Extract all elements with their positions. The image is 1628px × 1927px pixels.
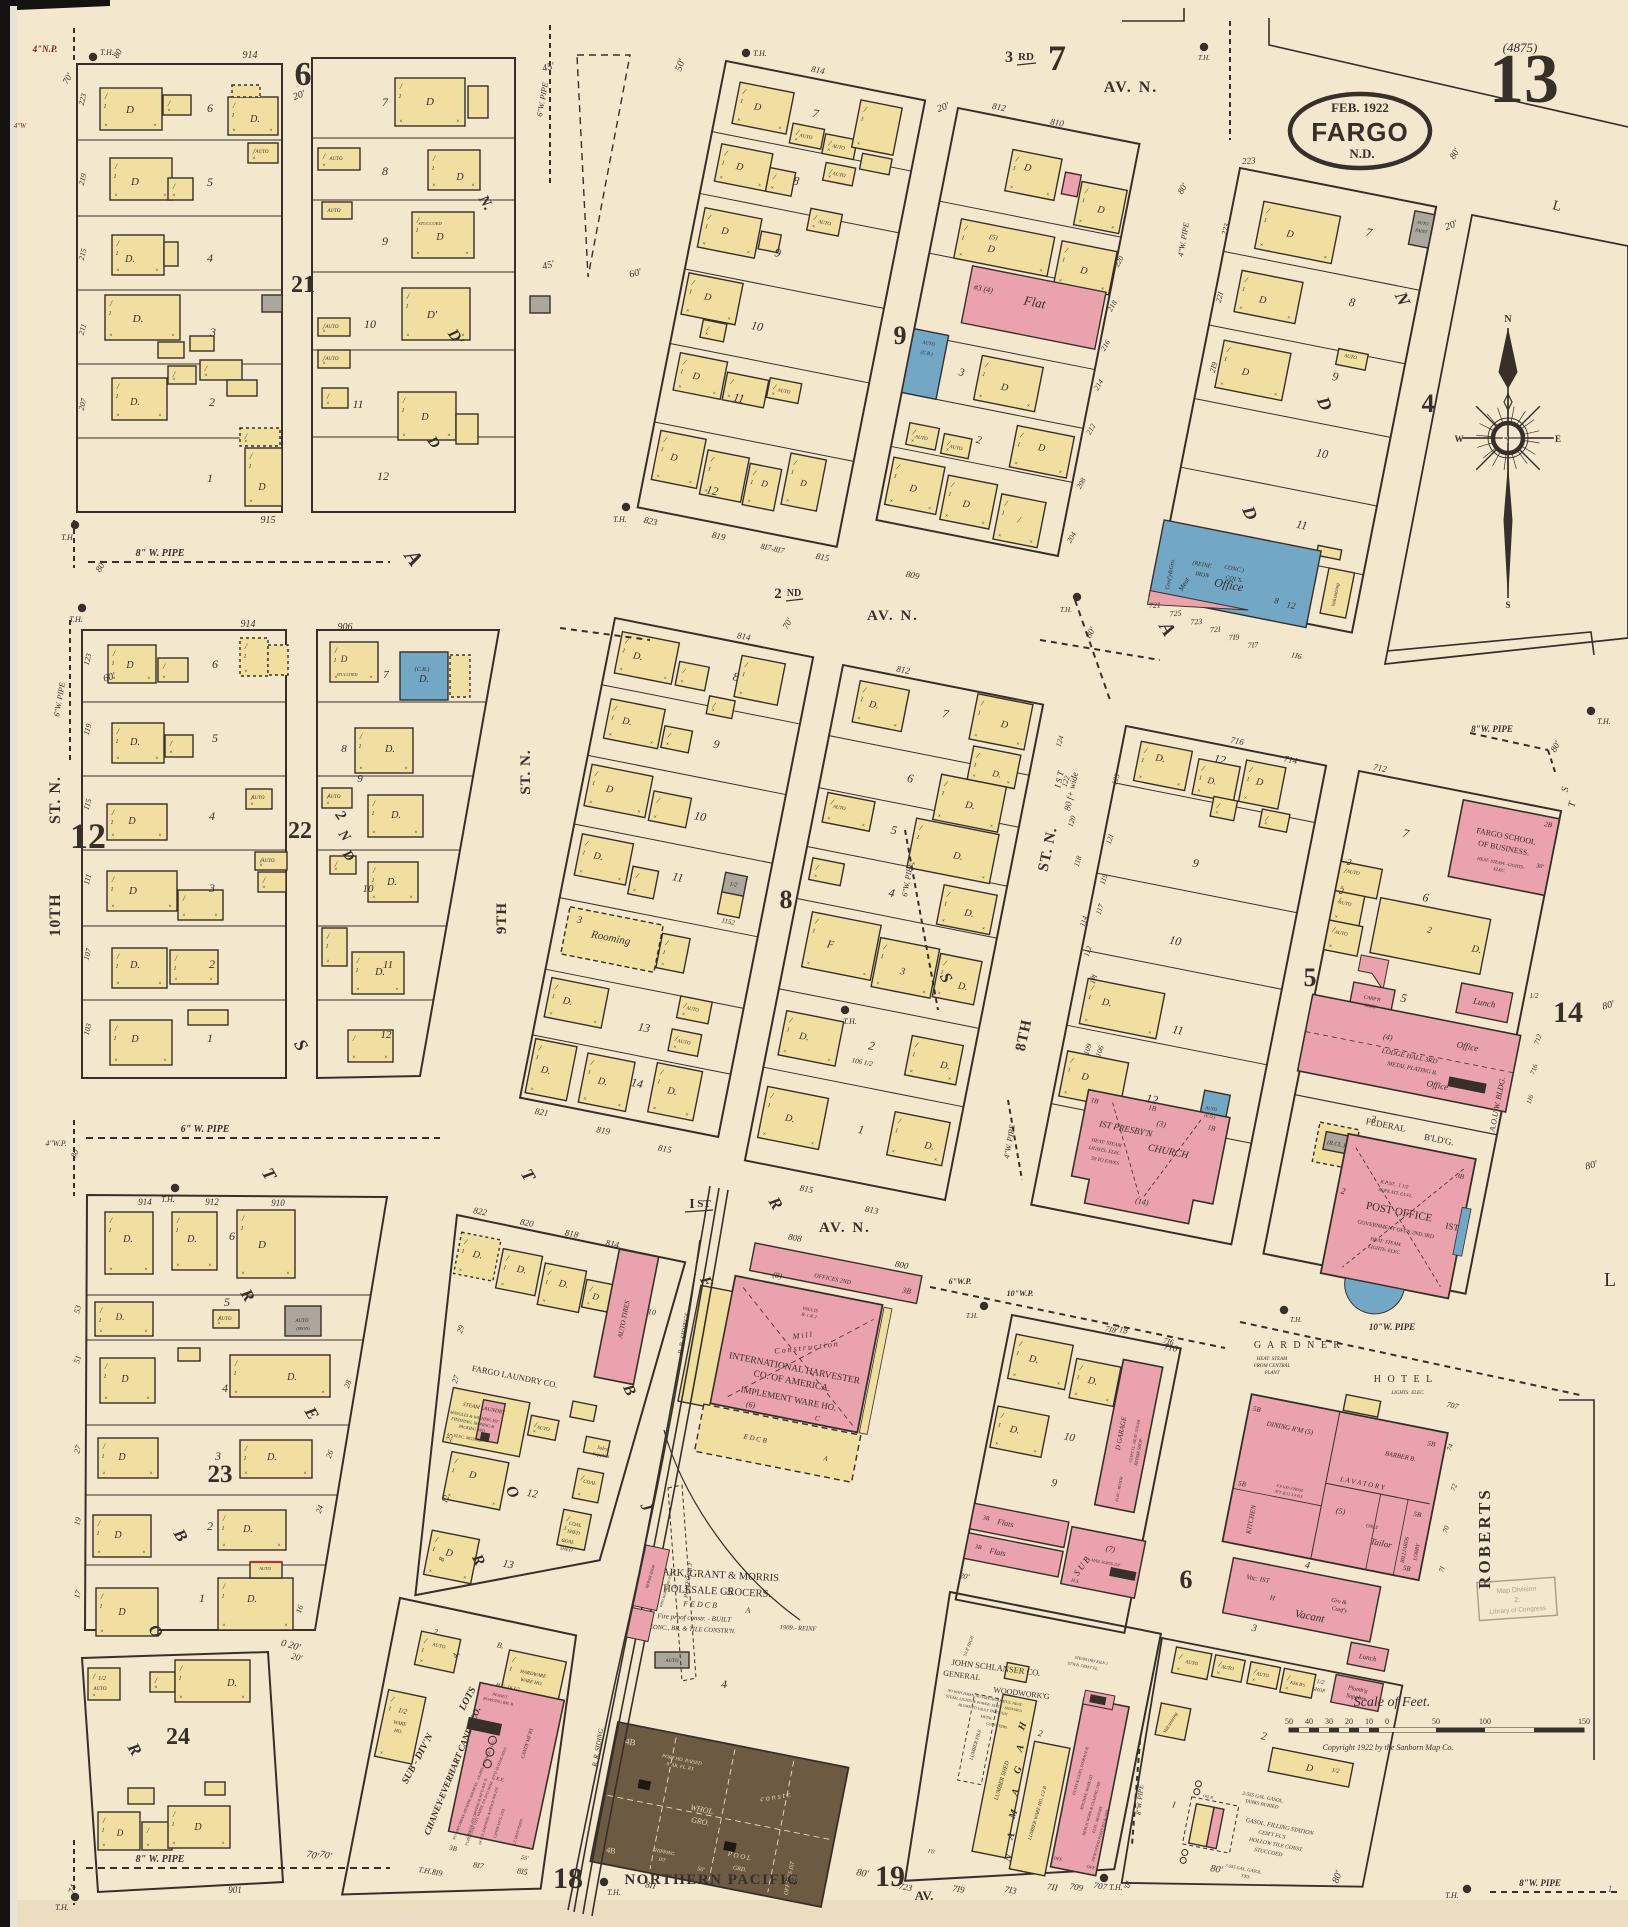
svg-text:AUTO: AUTO [258,1566,271,1571]
svg-text:AUTO: AUTO [218,1317,232,1322]
svg-text:×: × [395,987,398,993]
svg-text:10TH: 10TH [47,893,64,936]
svg-text:1: 1 [244,654,247,660]
svg-text:×: × [116,756,119,762]
svg-text:D: D [257,1239,266,1251]
svg-text:×: × [171,333,174,339]
svg-text:1: 1 [207,1031,213,1045]
svg-text:1: 1 [222,1594,225,1600]
svg-text:×: × [277,1543,280,1549]
svg-text:N.D.: N.D. [1349,146,1374,161]
svg-text:6" W. PIPE: 6" W. PIPE [181,1124,230,1135]
svg-text:725: 725 [1169,609,1182,619]
svg-text:×: × [172,377,175,383]
svg-text:D.: D. [797,1030,810,1043]
svg-text:D.: D. [129,960,140,971]
svg-text:1/2: 1/2 [1530,992,1539,1000]
svg-text:D.: D. [286,1372,297,1383]
svg-text:1: 1 [116,394,119,400]
svg-text:4"W: 4"W [14,122,27,130]
svg-text:×: × [109,1267,112,1273]
svg-text:7I7: 7I7 [1247,640,1259,650]
svg-text:707: 707 [1093,1880,1108,1892]
svg-text:1: 1 [244,1456,247,1462]
svg-text:E: E [1555,434,1561,444]
svg-text:×: × [168,904,171,910]
svg-text:PLANT: PLANT [1263,1371,1280,1376]
svg-text:723: 723 [1190,617,1203,627]
svg-text:AUTO: AUTO [325,325,339,330]
svg-text:2: 2 [774,586,782,602]
svg-text:×: × [244,439,247,445]
svg-text:223: 223 [1242,155,1257,166]
svg-text:6: 6 [212,657,218,671]
svg-text:D': D' [426,309,438,321]
svg-text:D.: D. [922,1140,935,1153]
svg-text:D.: D. [242,1524,253,1535]
svg-text:D: D [128,885,137,897]
svg-text:×: × [326,801,329,807]
svg-text:14: 14 [1553,996,1583,1029]
svg-text:22: 22 [288,818,312,844]
svg-text:2: 2 [207,1519,213,1533]
svg-text:T.H.: T.H. [1198,54,1210,62]
svg-text:4: 4 [207,251,213,265]
svg-text:1: 1 [112,661,115,667]
svg-text:9: 9 [357,773,363,785]
svg-text:T.H.: T.H. [607,1888,621,1897]
svg-text:10: 10 [364,317,376,331]
svg-text:1: 1 [416,228,419,234]
svg-text:D: D [125,660,134,671]
svg-text:×: × [241,1695,244,1701]
svg-text:AV. N.: AV. N. [867,608,919,624]
svg-text:×: × [409,895,412,901]
svg-text:D.: D. [962,907,975,920]
svg-text:×: × [163,193,166,199]
svg-text:4"W.P.: 4"W.P. [45,1139,66,1148]
svg-text:×: × [109,333,112,339]
svg-text:2: 2 [209,957,215,971]
svg-text:×: × [169,750,172,756]
svg-text:1: 1 [432,166,435,172]
svg-text:×: × [114,1058,117,1064]
svg-text:D.: D. [1153,752,1166,765]
svg-text:D.: D. [963,799,976,812]
svg-text:D.: D. [783,1112,796,1125]
svg-text:D.: D. [867,699,880,712]
svg-text:D.: D. [620,715,633,728]
svg-text:×: × [465,251,468,257]
svg-text:4: 4 [209,809,215,823]
svg-text:×: × [432,183,435,189]
svg-text:1/2: 1/2 [98,1676,106,1682]
svg-text:2:: 2: [1514,1597,1520,1604]
svg-text:19: 19 [875,1860,905,1893]
svg-text:1: 1 [109,311,112,317]
svg-text:4: 4 [721,1677,727,1691]
svg-text:1: 1 [114,1036,117,1042]
svg-text:D.: D. [1206,775,1218,787]
svg-text:×: × [146,1396,149,1402]
svg-text:×: × [250,802,253,808]
svg-text:D: D [127,816,136,827]
svg-text:×: × [402,433,405,439]
svg-text:AUTO: AUTO [327,795,341,800]
svg-text:8: 8 [382,164,388,178]
svg-text:2: 2 [209,395,215,409]
svg-text:709: 709 [1069,1881,1084,1893]
svg-text:3: 3 [208,881,215,895]
svg-text:×: × [406,333,409,339]
svg-text:ROBERTS: ROBERTS [1475,1487,1494,1589]
svg-text:5: 5 [224,1295,230,1309]
svg-text:×: × [209,977,212,983]
svg-text:ST: ST [697,1198,711,1210]
svg-text:8I5: 8I5 [516,1866,528,1877]
svg-text:10: 10 [363,883,375,895]
svg-text:50: 50 [1432,1717,1440,1726]
svg-text:D: D [435,232,444,243]
svg-text:D: D [257,482,266,493]
svg-text:1: 1 [104,1374,107,1380]
svg-text:11: 11 [352,397,363,411]
svg-text:×: × [221,1841,224,1847]
svg-text:1: 1 [179,1676,182,1682]
svg-text:×: × [158,981,161,987]
svg-text:8"W. PIPE: 8"W. PIPE [1471,724,1513,734]
svg-text:4: 4 [222,1381,228,1395]
svg-text:1: 1 [174,966,177,972]
svg-text:×: × [155,268,158,274]
svg-text:×: × [232,128,235,134]
svg-text:(C.B.): (C.B.) [415,666,430,673]
svg-text:1: 1 [111,887,114,893]
svg-text:1: 1 [109,1228,112,1234]
svg-text:STUCCOED: STUCCOED [337,672,358,677]
svg-text:T.H.: T.H. [843,1017,857,1026]
svg-text:3: 3 [209,325,216,339]
svg-text:D.: D. [1100,997,1113,1010]
svg-text:5: 5 [1304,963,1317,992]
svg-text:×: × [204,373,207,379]
svg-text:1: 1 [359,744,362,750]
svg-text:×: × [155,756,158,762]
svg-text:×: × [182,913,185,919]
svg-text:1: 1 [104,104,107,110]
svg-text:×: × [144,1329,147,1335]
svg-text:×: × [249,499,252,505]
svg-text:914: 914 [138,1197,152,1207]
svg-text:1: 1 [100,1604,103,1610]
svg-text:7I9: 7I9 [1228,633,1239,643]
svg-text:8" W. PIPE: 8" W. PIPE [136,1854,185,1865]
svg-text:×: × [102,1471,105,1477]
svg-text:D.: D. [515,1264,528,1277]
svg-text:T.H.: T.H. [1597,717,1611,726]
svg-text:1: 1 [222,1526,225,1532]
svg-text:1: 1 [372,811,375,817]
svg-text:D.: D. [561,995,574,1008]
svg-text:D: D [130,176,139,188]
svg-text:×: × [269,128,272,134]
svg-text:AUTO: AUTO [327,209,341,214]
svg-text:T.H.: T.H. [161,1195,175,1204]
svg-text:D.: D. [266,1452,277,1463]
svg-text:T.H.: T.H. [1109,1883,1123,1892]
svg-text:8"W. PIPE: 8"W. PIPE [1519,1878,1561,1888]
svg-text:D.: D. [1008,1424,1021,1437]
svg-text:AUTO: AUTO [255,150,269,155]
svg-text:721: 721 [1148,600,1161,610]
svg-text:AV.: AV. [915,1888,934,1903]
svg-text:×: × [321,1390,324,1396]
svg-text:D: D [120,1374,129,1385]
svg-text:5: 5 [212,731,218,745]
svg-text:12: 12 [381,1029,393,1041]
svg-text:D.: D. [539,1064,552,1077]
svg-text:D.: D. [129,737,140,748]
svg-text:D.: D. [115,1312,125,1322]
svg-text:×: × [416,251,419,257]
svg-text:3: 3 [1005,49,1013,66]
svg-text:T.H.: T.H. [1060,606,1072,614]
svg-text:×: × [222,1623,225,1629]
svg-text:×: × [384,1055,387,1061]
svg-text:×: × [179,1695,182,1701]
svg-text:D: D [340,654,348,664]
svg-text:1: 1 [399,94,402,100]
svg-text:AUTO: AUTO [665,1659,679,1664]
svg-text:1: 1 [356,968,359,974]
svg-text:D: D [125,104,134,116]
svg-text:10: 10 [1365,1717,1373,1726]
svg-text:×: × [414,830,417,836]
svg-text:10"W.P.: 10"W.P. [1007,1289,1034,1298]
svg-text:12: 12 [70,816,106,856]
svg-text:×: × [102,1843,105,1849]
svg-text:T.H.: T.H. [1445,1891,1459,1900]
svg-text:T.H.: T.H. [966,1312,978,1320]
svg-text:1: 1 [249,464,252,470]
svg-text:×: × [114,193,117,199]
svg-text:×: × [153,123,156,129]
svg-text:T.H.: T.H. [69,615,83,624]
svg-text:40: 40 [1305,1717,1313,1726]
svg-text:D.: D. [124,254,135,265]
svg-text:D.: D. [122,1234,133,1245]
svg-text:×: × [286,1271,289,1277]
svg-text:1: 1 [402,408,405,414]
svg-text:D.: D. [591,850,604,863]
svg-text:T.H.: T.H. [61,533,75,542]
svg-text:L: L [1604,1269,1616,1291]
svg-text:STUCCOED: STUCCOED [418,221,442,226]
svg-text:150: 150 [1578,1717,1590,1726]
svg-text:×: × [241,1271,244,1277]
svg-text:F E D C B: F E D C B [682,1599,717,1610]
svg-text:ST. N.: ST. N. [47,776,64,824]
svg-text:50: 50 [1285,1717,1293,1726]
svg-text:D: D [113,1530,122,1541]
svg-text:×: × [142,1550,145,1556]
svg-text:H O T E L: H O T E L [1374,1374,1434,1385]
svg-text:12: 12 [377,469,389,483]
svg-text:1: 1 [102,1454,105,1460]
svg-text:×: × [359,766,362,772]
svg-text:×: × [208,1263,211,1269]
svg-text:×: × [111,833,114,839]
svg-text:(4875): (4875) [1503,40,1538,55]
svg-text:×: × [167,108,170,114]
svg-text:8: 8 [341,743,347,755]
svg-text:D: D [130,1034,139,1045]
svg-text:T.H.: T.H. [613,515,627,524]
svg-text:I: I [689,1197,694,1212]
svg-text:×: × [158,833,161,839]
svg-text:N: N [1504,314,1512,325]
svg-text:AV. N.: AV. N. [819,1220,871,1236]
svg-text:1: 1 [334,658,337,664]
svg-text:1: 1 [97,1531,100,1537]
svg-text:×: × [158,413,161,419]
svg-text:7: 7 [383,669,389,681]
svg-text:S: S [1502,433,1509,447]
svg-text:1: 1 [111,820,114,826]
svg-text:20': 20' [959,1571,971,1582]
svg-text:FARGO: FARGO [1311,117,1408,147]
svg-text:1: 1 [234,1371,237,1377]
svg-text:4: 4 [1422,389,1435,418]
svg-text:×: × [176,1263,179,1269]
svg-text:×: × [111,904,114,910]
svg-text:D.: D. [418,674,429,685]
svg-text:915: 915 [261,515,276,526]
svg-text:ND: ND [787,588,801,599]
svg-text:10"W. PIPE: 10"W. PIPE [1369,1322,1415,1332]
svg-text:T.H.: T.H. [1290,1316,1302,1324]
svg-text:1: 1 [116,964,119,970]
svg-text:906: 906 [338,622,353,633]
svg-text:D.: D. [991,768,1003,780]
svg-text:×: × [322,163,325,169]
svg-text:6: 6 [295,56,312,93]
svg-text:NORTHERN PACIFIC: NORTHERN PACIFIC [624,1872,799,1888]
svg-text:Scale of Feet.: Scale of Feet. [1354,1695,1431,1710]
svg-text:1: 1 [207,471,213,485]
svg-text:24: 24 [166,1724,190,1750]
svg-text:D.: D. [374,967,385,978]
svg-text:AUTO: AUTO [329,157,343,162]
svg-text:D.: D. [596,1075,609,1088]
svg-text:1: 1 [232,113,235,119]
svg-text:T.H.: T.H. [753,49,767,58]
svg-text:21: 21 [291,272,315,298]
svg-text:D: D [117,1607,126,1618]
svg-text:×: × [172,1841,175,1847]
svg-text:×: × [399,119,402,125]
svg-text:×: × [404,766,407,772]
svg-text:8: 8 [780,885,793,914]
svg-text:72I: 72I [1210,625,1222,635]
svg-text:4"N.P.: 4"N.P. [32,44,58,54]
svg-text:×: × [471,183,474,189]
svg-text:D.: D. [384,744,395,755]
svg-text:23: 23 [208,1461,233,1488]
svg-text:×: × [262,885,265,891]
svg-text:D: D [117,1452,126,1463]
svg-text:7I9: 7I9 [952,1883,966,1895]
svg-text:D.: D. [471,1249,484,1262]
svg-text:D.: D. [951,850,964,863]
svg-text:×: × [116,413,119,419]
svg-text:1: 1 [114,174,117,180]
svg-text:×: × [326,959,329,965]
svg-text:9TH: 9TH [494,902,510,934]
svg-text:914: 914 [241,619,256,630]
svg-text:D.: D. [129,397,140,408]
svg-text:ST. N.: ST. N. [518,749,534,794]
svg-text:×: × [99,1329,102,1335]
svg-text:912: 912 [205,1197,219,1207]
svg-text:1: 1 [99,1318,102,1324]
svg-text:914: 914 [243,50,258,61]
svg-text:D.: D. [938,1059,951,1072]
svg-text:D.: D. [186,1234,197,1245]
svg-text:×: × [149,1471,152,1477]
svg-text:×: × [104,1396,107,1402]
svg-text:×: × [447,433,450,439]
svg-text:D: D [116,1828,124,1838]
svg-text:×: × [456,119,459,125]
svg-text:×: × [154,1685,157,1691]
svg-text:FROM CENTRAL: FROM CENTRAL [1253,1364,1291,1369]
svg-text:D.: D. [226,1678,237,1689]
svg-text:1: 1 [116,739,119,745]
svg-text:AUTO: AUTO [325,357,339,362]
svg-text:1: 1 [326,944,329,950]
svg-text:9: 9 [894,321,907,350]
svg-text:×: × [214,913,217,919]
svg-text:1: 1 [1608,1884,1613,1894]
svg-text:1: 1 [172,1822,175,1828]
svg-text:D.: D. [631,650,644,663]
svg-text:×: × [369,675,372,681]
svg-text:20: 20 [1345,1717,1353,1726]
svg-text:×: × [372,830,375,836]
svg-text:D.: D. [249,114,260,125]
svg-text:×: × [97,1550,100,1556]
svg-text:D: D [455,172,464,183]
svg-text:×: × [244,669,247,675]
svg-text:1: 1 [102,1828,105,1834]
svg-text:A: A [745,1606,751,1615]
svg-text:×: × [222,1543,225,1549]
svg-text:3B: 3B [901,1285,913,1296]
svg-text:D: D [420,412,429,423]
svg-text:×: × [284,1623,287,1629]
svg-text:D.: D. [1470,943,1483,956]
svg-text:×: × [162,675,165,681]
svg-text:×: × [303,1471,306,1477]
svg-text:1: 1 [116,251,119,257]
svg-text:×: × [372,895,375,901]
svg-text:30: 30 [1325,1717,1333,1726]
svg-text:LIGHTS: ELEC.: LIGHTS: ELEC. [1390,1391,1424,1396]
svg-text:0: 0 [1385,1717,1389,1726]
svg-text:×: × [326,401,329,407]
svg-text:D: D [193,1822,202,1833]
